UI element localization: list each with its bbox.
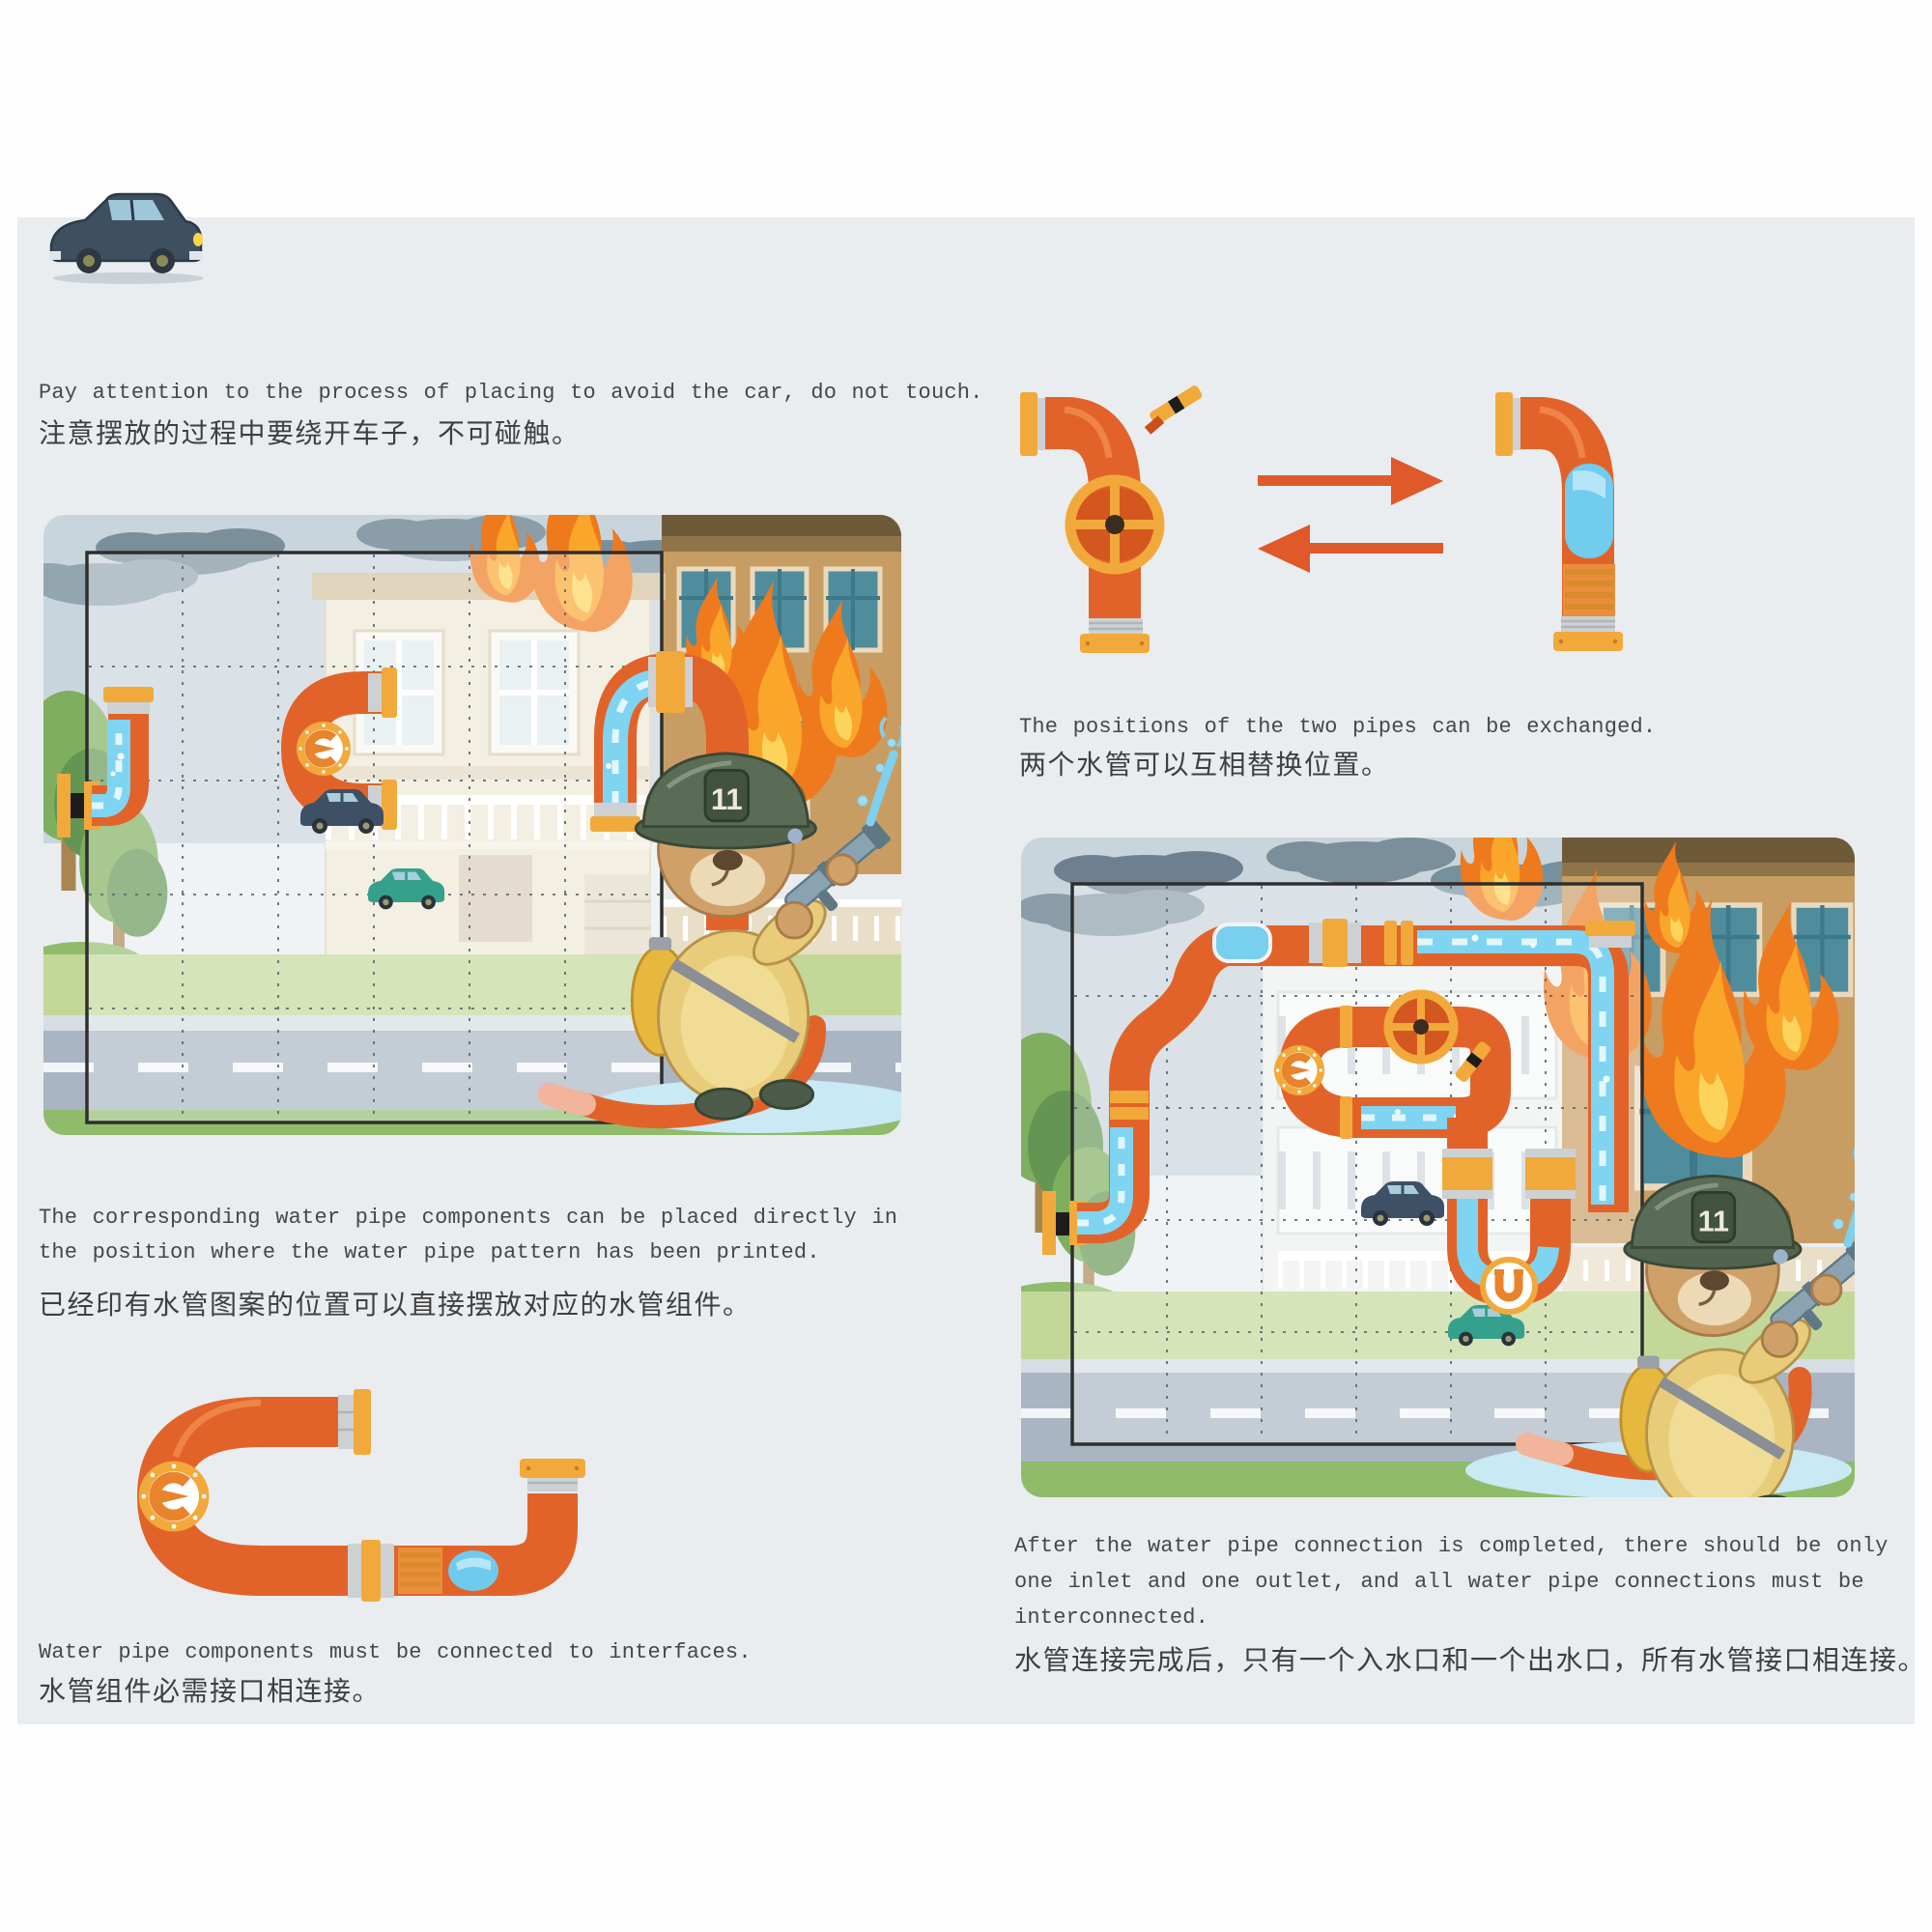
- pipe-water-window: [1214, 924, 1270, 961]
- exchange-en: The positions of the two pipes can be ex…: [1019, 715, 1656, 740]
- completion-zh: 水管连接完成后，只有一个入水口和一个出水口，所有水管接口相连接。: [1014, 1644, 1926, 1677]
- car-note-en: Pay attention to the process of placing …: [39, 381, 983, 406]
- window-pipe: [1495, 392, 1623, 651]
- interfaces-zh: 水管组件必需接口相连接。: [39, 1675, 381, 1708]
- completion-en2: one inlet and one outlet, and all water …: [1014, 1570, 1864, 1595]
- inlet-outer-flange-right: [1042, 1191, 1056, 1255]
- printed-pattern-en1: The corresponding water pipe components …: [39, 1206, 897, 1231]
- scanned-manual-page: 11 Pay attention to the process of placi…: [0, 0, 1932, 1932]
- printed-pattern-en2: the position where the water pipe patter…: [39, 1240, 820, 1265]
- completion-en1: After the water pipe connection is compl…: [1014, 1534, 1889, 1559]
- interfaces-en: Water pipe components must be connected …: [39, 1640, 752, 1665]
- game-board-left: [43, 515, 901, 1135]
- valve-pipe: [1020, 384, 1204, 653]
- completion-en3: interconnected.: [1014, 1605, 1208, 1631]
- exchange-arrows: [1258, 457, 1443, 573]
- car-note-zh: 注意摆放的过程中要绕开车子，不可碰触。: [39, 417, 581, 450]
- pipe-component-figure: [116, 1376, 609, 1619]
- car-icon: [37, 184, 211, 290]
- pipe-component: [139, 1389, 585, 1602]
- game-board-right: [1021, 838, 1855, 1497]
- printed-pattern-zh: 已经印有水管图案的位置可以直接摆放对应的水管组件。: [39, 1289, 752, 1321]
- exchange-zh: 两个水管可以互相替换位置。: [1019, 749, 1390, 781]
- pipe-exchange-figure: [1014, 375, 1652, 676]
- inlet-outer-flange: [57, 774, 71, 838]
- water-window-component: [448, 1550, 498, 1591]
